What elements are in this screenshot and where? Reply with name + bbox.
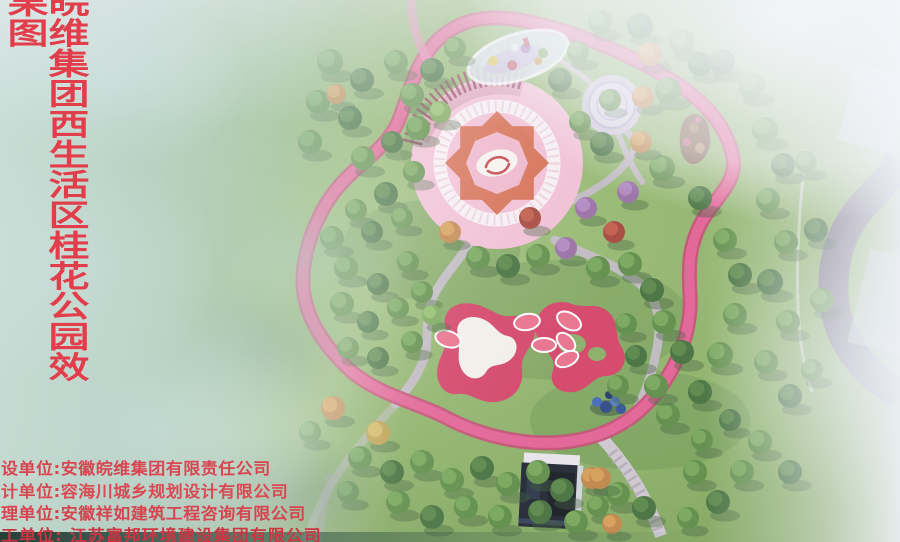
credit-line-design: 计单位:容海川城乡规划设计有限公司 <box>1 478 288 502</box>
credit-line-construction: 设单位:安徽皖维集团有限责任公司 <box>1 455 271 479</box>
title-vertical: 皖维集团西生活区桂花公园效果图 <box>3 0 85 398</box>
credit-line-supervision: 理单位:安徽祥如建筑工程咨询有限公司 <box>1 500 306 524</box>
circular-plaza <box>582 75 642 135</box>
credit-line-contractor: 工单位: 江苏富邦环境建设集团有限公司 <box>1 522 322 542</box>
billboard-photo: 皖维集团西生活区桂花公园效果图 设单位:安徽皖维集团有限责任公司 计单位:容海川… <box>0 0 900 542</box>
